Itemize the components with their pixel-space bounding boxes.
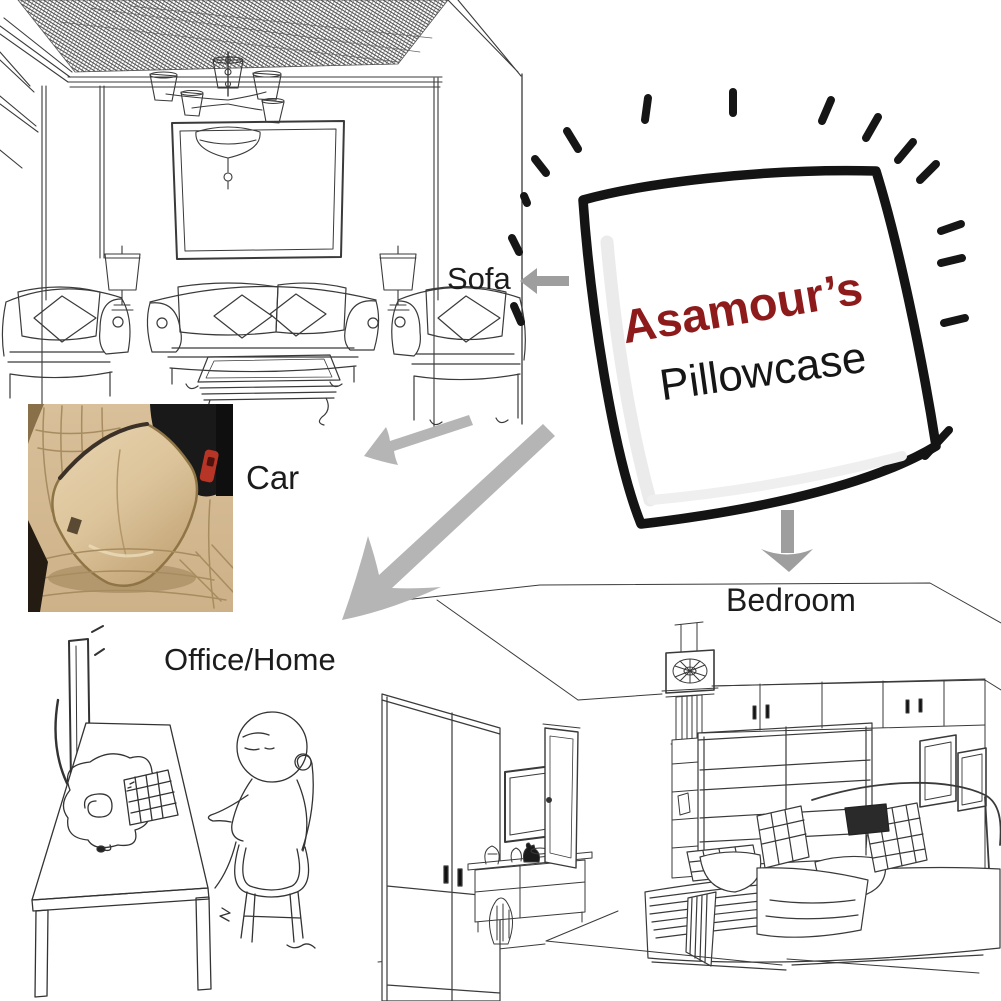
arrow-left-icon (520, 268, 569, 294)
chandelier (150, 52, 284, 189)
armchair-right (392, 286, 526, 424)
armchair-left (2, 287, 130, 398)
bedroom-illustration (378, 583, 1001, 1001)
sofa-three-seat (147, 283, 378, 389)
speaker-column (662, 622, 718, 744)
wardrobe (382, 694, 500, 1001)
arrow-down-icon (761, 510, 813, 572)
chair (220, 755, 315, 948)
door (543, 724, 580, 868)
label-car: Car (246, 461, 299, 494)
label-office: Office/Home (164, 644, 336, 675)
wall-frames (920, 735, 986, 811)
product-infographic: Sofa Car Office/Home Bedroom Asamour’s P… (0, 0, 1001, 1001)
living-room-illustration (0, 0, 525, 428)
office-cartoon (32, 626, 315, 997)
label-bedroom: Bedroom (726, 584, 856, 616)
person-at-desk (208, 712, 311, 888)
illustration-layer (0, 0, 1001, 1001)
label-sofa: Sofa (447, 263, 511, 294)
arrow-down-left-icon (364, 415, 473, 465)
car-seat-photo (28, 404, 233, 612)
